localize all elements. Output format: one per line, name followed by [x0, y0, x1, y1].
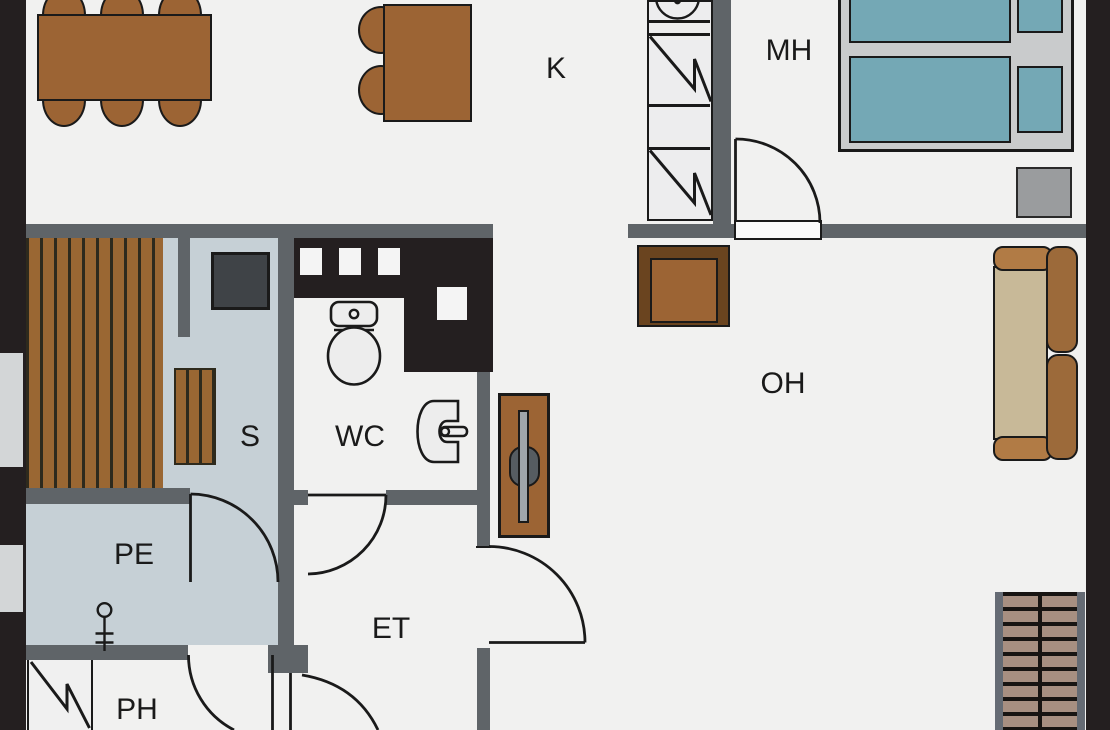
sauna-stove — [211, 252, 270, 310]
floor-plan: K MH OH S WC PE ET PH — [0, 0, 1110, 730]
window — [0, 545, 23, 612]
stair-stringer — [1077, 592, 1085, 730]
wc-counter-inset — [378, 248, 400, 275]
wall — [178, 238, 190, 337]
room-label-kitchen: K — [546, 54, 566, 84]
door-swing-bedroom — [736, 139, 821, 223]
wall — [477, 648, 490, 730]
bed-pillow — [1017, 66, 1063, 133]
room-label-entrance: ET — [372, 614, 410, 644]
door-opening-bedroom — [734, 220, 822, 240]
room-label-sauna: S — [240, 422, 260, 452]
wall — [26, 224, 493, 238]
sofa-back-cushion — [1046, 246, 1078, 353]
closet-divider — [649, 33, 710, 36]
wc-counter-inset — [300, 248, 322, 275]
wall-junction — [268, 645, 308, 673]
closet-divider — [649, 20, 710, 23]
closet-divider — [649, 147, 710, 150]
wall — [294, 490, 308, 505]
wall — [477, 372, 490, 548]
wall — [822, 224, 1110, 238]
toilet-flush-button — [350, 310, 358, 318]
room-label-bedroom: MH — [766, 36, 813, 66]
sauna-bench-small — [174, 368, 216, 465]
door-swing-entrance — [489, 547, 585, 643]
window — [0, 353, 23, 467]
sofa-armrest — [993, 246, 1053, 271]
sink-faucet — [441, 427, 467, 436]
sink-basin — [418, 401, 459, 462]
wall — [386, 490, 490, 505]
sofa-seat — [993, 266, 1048, 440]
bed-mattress — [849, 56, 1011, 143]
wall — [628, 224, 736, 238]
room-label-living-room: OH — [761, 369, 806, 399]
door-swing-hall — [302, 675, 378, 730]
fireplace-flue-bar — [518, 410, 529, 523]
door-swing-utility — [188, 655, 234, 730]
wall — [26, 488, 190, 504]
wall — [26, 645, 188, 660]
dining-table — [37, 14, 212, 101]
armchair-seat — [650, 258, 718, 323]
stair-divider — [1038, 592, 1042, 730]
staircase — [995, 592, 1085, 730]
closet-divider — [649, 104, 710, 107]
bed-mattress — [849, 0, 1011, 43]
sauna-bench-large — [26, 238, 163, 488]
sofa-armrest — [993, 436, 1053, 461]
wc-counter-inset — [437, 287, 467, 320]
utility-appliance — [27, 658, 93, 730]
toilet-bowl — [328, 328, 380, 385]
sink-drain — [441, 428, 449, 436]
door-swing-wc — [308, 495, 386, 574]
stair-stringer — [995, 592, 1003, 730]
exterior-wall-right — [1086, 0, 1110, 730]
nightstand — [1016, 167, 1072, 218]
wall — [713, 0, 731, 224]
room-label-utility: PH — [116, 695, 158, 725]
wc-counter-inset — [339, 248, 361, 275]
room-label-washroom: PE — [114, 540, 154, 570]
closet-column — [647, 0, 713, 221]
sofa-back-cushion — [1046, 354, 1078, 460]
toilet-tank — [331, 302, 377, 326]
bed-pillow — [1017, 0, 1063, 33]
kitchen-table — [383, 4, 472, 122]
door-opening-entrance — [476, 546, 491, 645]
wall — [278, 238, 294, 645]
room-label-wc: WC — [335, 422, 385, 452]
